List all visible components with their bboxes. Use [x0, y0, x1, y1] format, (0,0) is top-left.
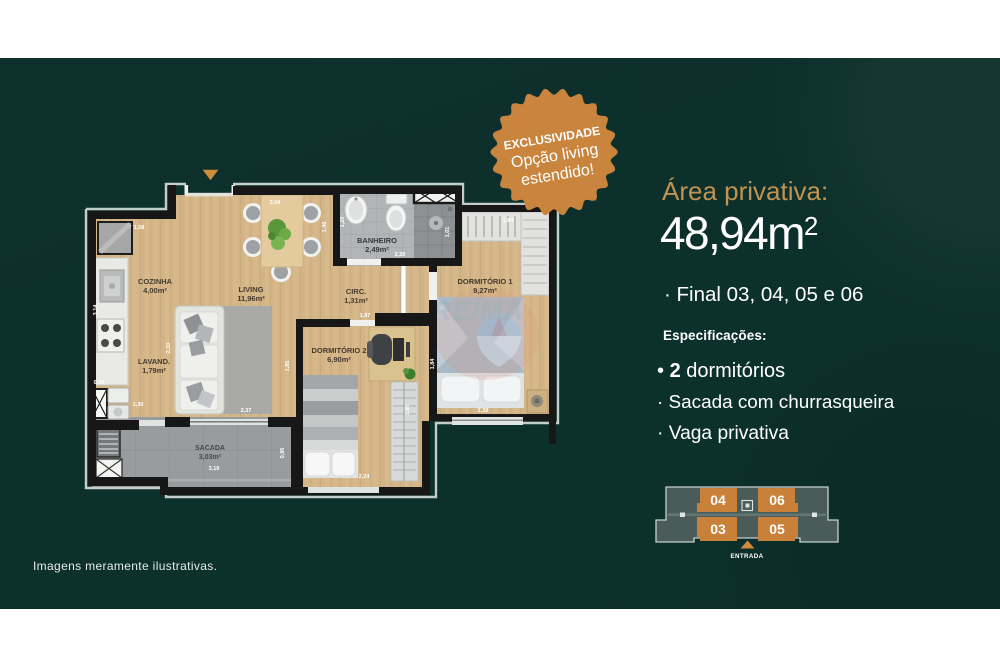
svg-text:BANHEIRO: BANHEIRO	[357, 236, 397, 245]
svg-text:3,14: 3,14	[93, 304, 99, 316]
svg-text:ENTRADA: ENTRADA	[730, 553, 763, 560]
svg-text:LIVING: LIVING	[238, 285, 263, 294]
svg-text:1,58: 1,58	[134, 225, 145, 231]
svg-text:2,24: 2,24	[359, 474, 371, 480]
svg-text:1,84: 1,84	[503, 218, 515, 224]
svg-text:06: 06	[769, 492, 785, 508]
svg-text:COZINHA: COZINHA	[138, 277, 173, 286]
svg-text:0,95: 0,95	[280, 448, 286, 459]
svg-text:0,20: 0,20	[94, 380, 105, 386]
svg-text:2,49m²: 2,49m²	[365, 245, 389, 254]
svg-text:SACADA: SACADA	[195, 445, 225, 452]
svg-text:3,19: 3,19	[209, 466, 220, 472]
svg-text:LAVAND.: LAVAND.	[138, 357, 170, 366]
svg-text:1,87: 1,87	[360, 313, 371, 319]
svg-text:RE/MA: RE/MA	[432, 296, 524, 326]
svg-text:3,06: 3,06	[405, 405, 411, 416]
svg-text:1,40: 1,40	[322, 222, 328, 233]
svg-text:9,27m²: 9,27m²	[473, 286, 497, 295]
svg-text:2,39: 2,39	[478, 408, 489, 414]
svg-text:11,96m²: 11,96m²	[237, 294, 265, 303]
svg-text:3,03m²: 3,03m²	[199, 454, 222, 461]
svg-text:03: 03	[710, 521, 726, 537]
svg-text:1,79m²: 1,79m²	[142, 366, 166, 375]
svg-text:1,01: 1,01	[445, 227, 451, 238]
svg-text:6,90m²: 6,90m²	[327, 355, 351, 364]
svg-text:3,04: 3,04	[270, 200, 282, 206]
svg-text:1,30: 1,30	[133, 402, 144, 408]
svg-text:2,20: 2,20	[395, 252, 406, 258]
svg-text:05: 05	[769, 521, 785, 537]
svg-text:CIRC.: CIRC.	[346, 287, 366, 296]
svg-text:1,31m²: 1,31m²	[344, 296, 368, 305]
svg-text:DORMITÓRIO 2: DORMITÓRIO 2	[311, 346, 366, 355]
svg-text:1,20: 1,20	[340, 217, 346, 228]
svg-text:1,85: 1,85	[285, 361, 291, 372]
svg-text:2,10: 2,10	[166, 343, 172, 354]
svg-text:DORMITÓRIO 1: DORMITÓRIO 1	[457, 277, 512, 286]
svg-text:1,84: 1,84	[430, 358, 436, 370]
svg-text:2,37: 2,37	[241, 408, 252, 414]
svg-text:04: 04	[710, 492, 726, 508]
svg-text:4,00m²: 4,00m²	[143, 286, 167, 295]
